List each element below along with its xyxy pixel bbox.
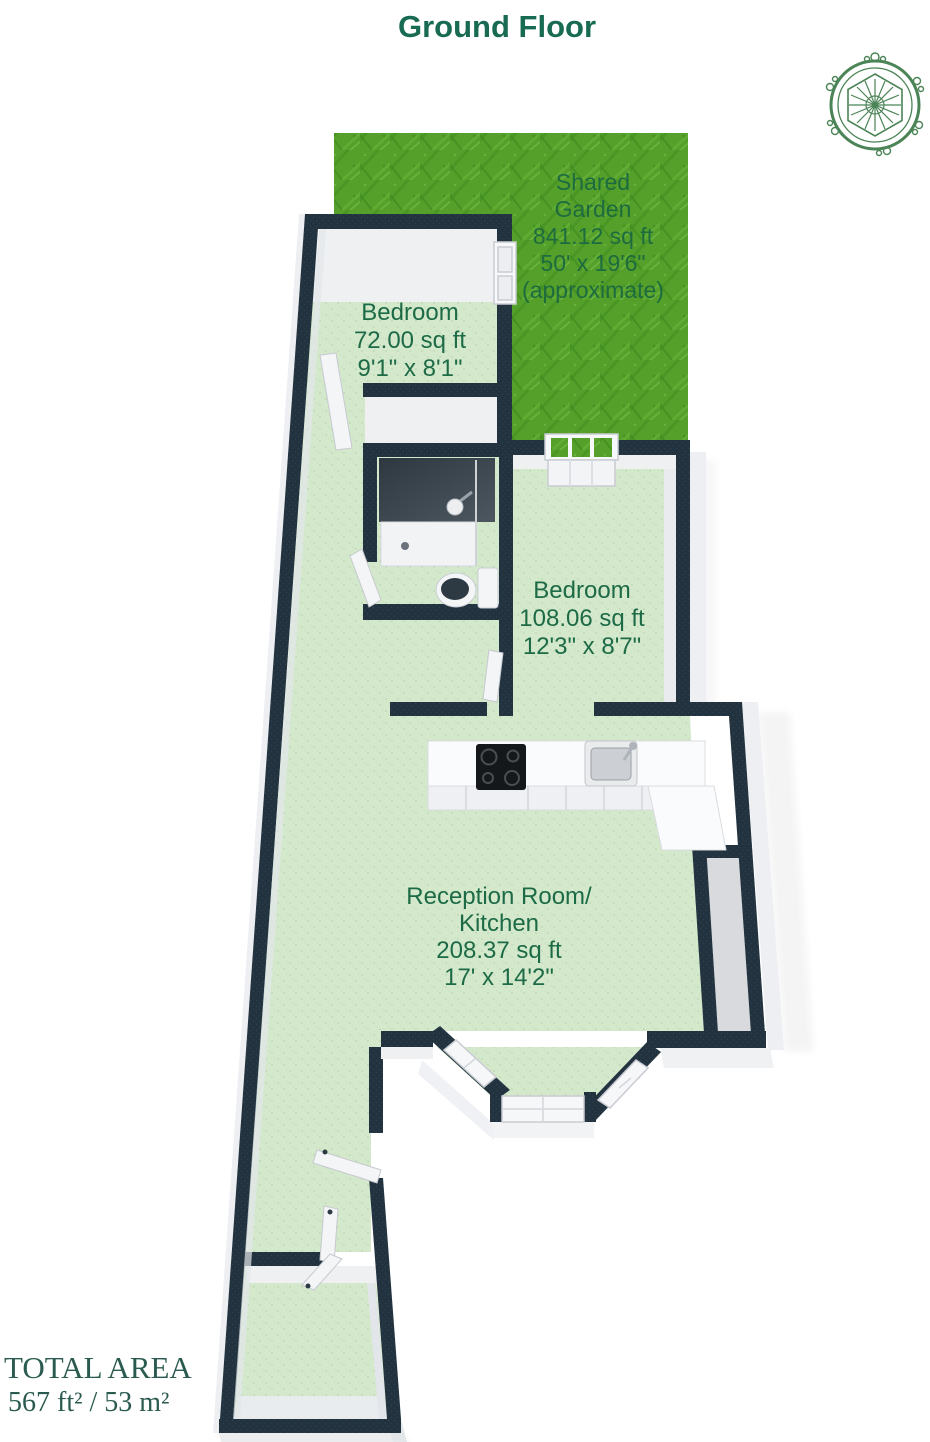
entrance-door-handle	[323, 1150, 328, 1155]
shower-tray	[381, 522, 476, 566]
kitchen-counter-right	[648, 786, 726, 850]
bedroom1-dims: 9'1" x 8'1"	[358, 355, 463, 382]
page-title: Ground Floor	[398, 9, 596, 44]
floorplan-svg: Shared Garden 841.12 sq ft 50' x 19'6" (…	[0, 0, 930, 1442]
garden-label-line1: Shared	[556, 169, 630, 195]
hall-door-handle-lower	[306, 1284, 311, 1289]
bedroom2-name: Bedroom	[533, 577, 630, 604]
sink-basin	[591, 748, 631, 780]
floorplan-page: Shared Garden 841.12 sq ft 50' x 19'6" (…	[0, 0, 930, 1442]
wall-bay-right-stub	[647, 1031, 766, 1048]
wall-bathroom-right	[499, 443, 513, 716]
reception-dims: 17' x 14'2"	[444, 964, 554, 991]
wall-bedroom1-top	[305, 214, 512, 229]
bedroom1-window	[494, 242, 516, 304]
garden-area: 841.12 sq ft	[533, 223, 654, 249]
toilet-seat	[441, 578, 469, 600]
wall-bay-jamb-left	[490, 1092, 502, 1122]
garden-note: (approximate)	[522, 277, 664, 303]
wall-bottom	[219, 1419, 401, 1433]
reception-name-line2: Kitchen	[459, 910, 539, 937]
reception-area: 208.37 sq ft	[436, 937, 562, 964]
wall-kitchen-top-left	[390, 702, 487, 716]
wall-bedroom1-bottom	[363, 383, 503, 397]
bedroom1-name: Bedroom	[361, 299, 458, 326]
wall-bedroom2-right	[676, 440, 690, 716]
bay-window-bottom	[502, 1096, 584, 1122]
bedroom2-area: 108.06 sq ft	[519, 605, 645, 632]
wall-bathroom-top	[363, 443, 513, 457]
bedroom1-area: 72.00 sq ft	[354, 327, 466, 354]
reception-name-line1: Reception Room/	[406, 883, 592, 910]
total-area-label: TOTAL AREA	[4, 1350, 192, 1385]
shower-drain	[401, 542, 409, 550]
shower-enclosure	[379, 458, 495, 522]
bedroom2-garden-window	[545, 434, 618, 486]
total-area: TOTAL AREA 567 ft² / 53 m²	[4, 1350, 192, 1418]
shower-head	[447, 499, 463, 515]
wall-bay-left-stub	[381, 1031, 433, 1047]
wall-kitchen-top-right	[594, 702, 742, 716]
bedroom2-dims: 12'3" x 8'7"	[523, 633, 641, 660]
wall-corridor-right-upper	[369, 1047, 383, 1133]
hall-door-handle-upper	[328, 1210, 333, 1215]
toilet-cistern	[478, 568, 498, 608]
wall-bathroom-left	[363, 443, 377, 562]
garden-label-line2: Garden	[555, 196, 632, 222]
garden-dims: 50' x 19'6"	[540, 250, 645, 276]
kitchen-counter-top	[428, 741, 705, 786]
total-area-value: 567 ft² / 53 m²	[8, 1387, 169, 1418]
